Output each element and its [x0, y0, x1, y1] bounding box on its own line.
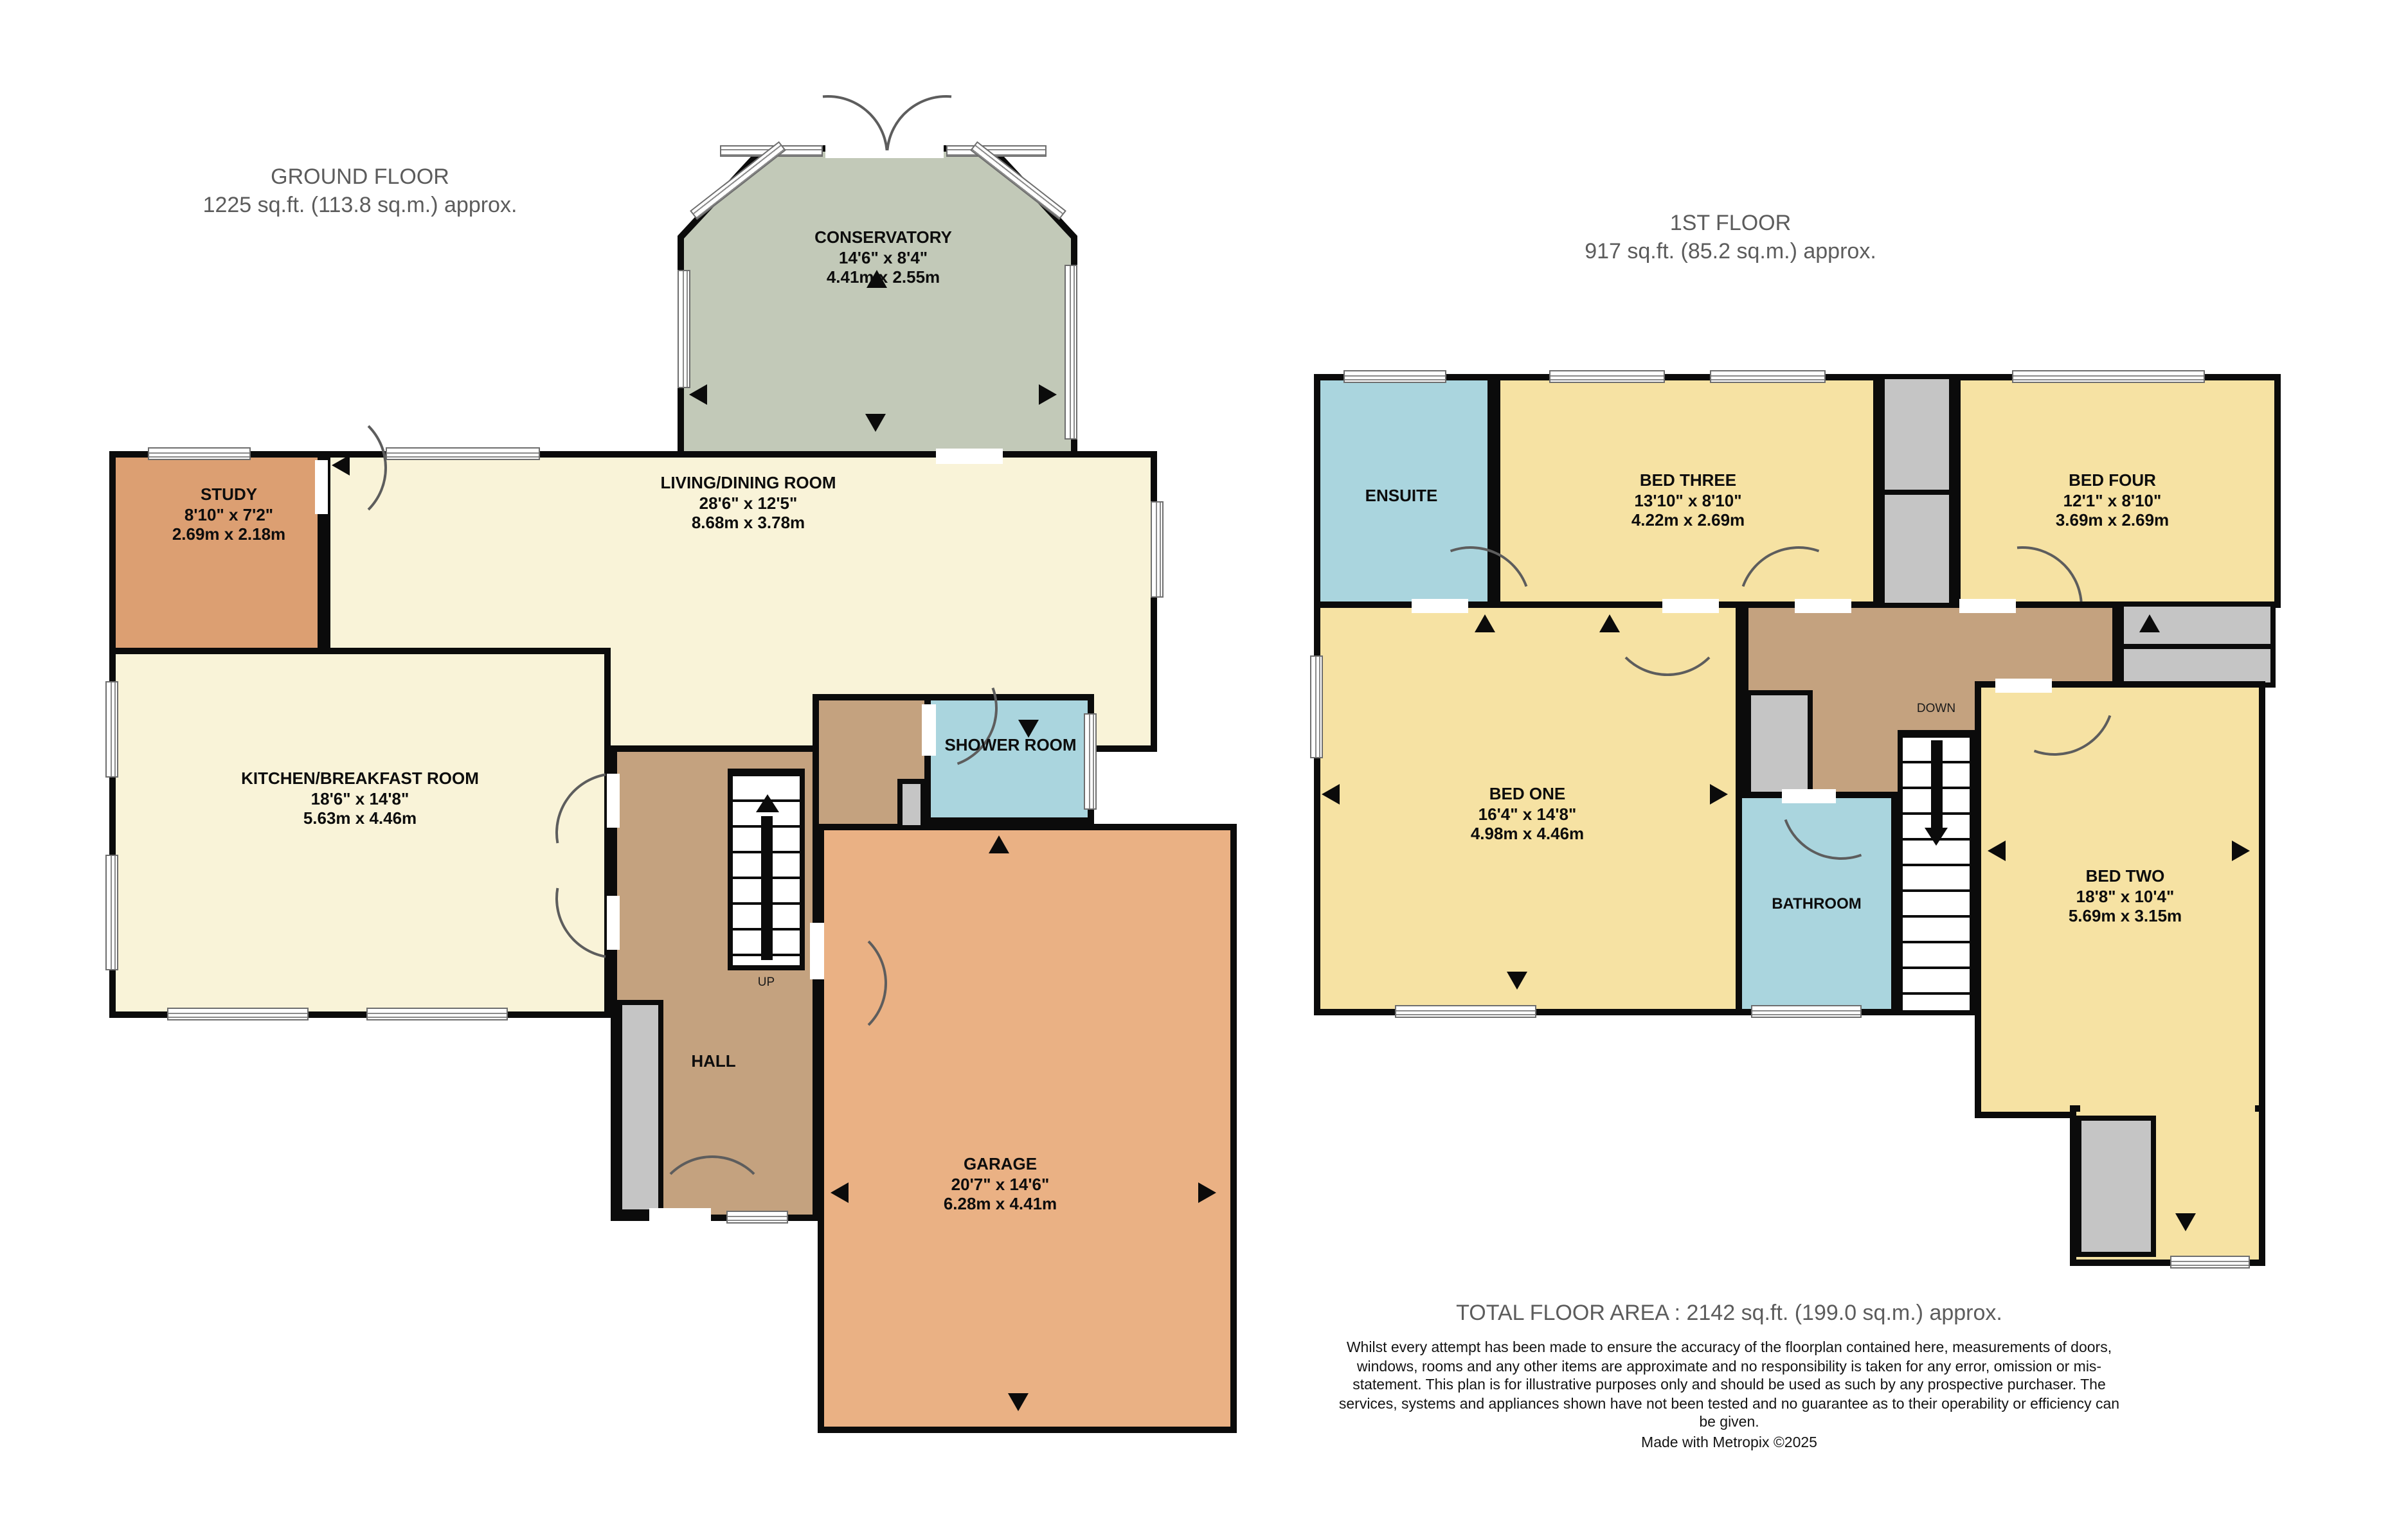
- stairs-down-label: DOWN: [1898, 702, 1975, 716]
- bathroom-window-bottom: [1751, 1005, 1862, 1018]
- bed-three-cupboard-1: [1880, 374, 1954, 495]
- bed-three-cupboard-2: [1880, 490, 1954, 608]
- stairs-up-arrow-head: [756, 794, 779, 812]
- kitchen-dims-metric: 5.63m x 4.46m: [199, 808, 521, 828]
- kitchen-name: KITCHEN/BREAKFAST ROOM: [199, 769, 521, 788]
- first-floor-title: 1ST FLOOR 917 sq.ft. (85.2 sq.m.) approx…: [1473, 209, 1988, 266]
- hall-name: HALL: [636, 1051, 791, 1071]
- ensuite-name: ENSUITE: [1324, 486, 1478, 506]
- metropix-credit: Made with Metropix ©2025: [1337, 1434, 2121, 1452]
- kitchen-label: KITCHEN/BREAKFAST ROOM 18'6" x 14'8" 5.6…: [199, 769, 521, 828]
- stairs-down-arrow-shaft: [1931, 740, 1943, 830]
- bed-three-window-top-2: [1710, 370, 1826, 383]
- footer: TOTAL FLOOR AREA : 2142 sq.ft. (199.0 sq…: [1337, 1301, 2121, 1452]
- room-kitchen-breakfast: [109, 648, 611, 1018]
- garage-marker-down: [1008, 1393, 1029, 1411]
- bed-three-window-top-1: [1549, 370, 1665, 383]
- conservatory-label: CONSERVATORY 14'6" x 8'4" 4.41m x 2.55m: [755, 227, 1012, 287]
- corridor-cupboard: [897, 779, 926, 830]
- living-label: LIVING/DINING ROOM 28'6" x 12'5" 8.68m x…: [588, 473, 909, 533]
- bed-two-cupboard: [2076, 1116, 2156, 1257]
- garage-door-arc: [766, 923, 887, 1044]
- bed-three-dims-imperial: 13'10" x 8'10": [1559, 490, 1817, 510]
- total-floor-area: TOTAL FLOOR AREA : 2142 sq.ft. (199.0 sq…: [1337, 1301, 2121, 1326]
- ensuite-marker-up: [1475, 614, 1495, 632]
- bed-four-dims-imperial: 12'1" x 8'10": [1984, 490, 2241, 510]
- living-to-conservatory-opening: [936, 449, 1003, 464]
- garage-name: GARAGE: [840, 1154, 1161, 1174]
- study-name: STUDY: [120, 485, 338, 504]
- first-floor-title-line1: 1ST FLOOR: [1473, 209, 1988, 238]
- bed-two-dims-metric: 5.69m x 3.15m: [1997, 906, 2254, 926]
- kitchen-dims-imperial: 18'6" x 14'8": [199, 788, 521, 808]
- living-window-right: [1151, 501, 1164, 598]
- ground-floor-title-line2: 1225 sq.ft. (113.8 sq.m.) approx.: [103, 191, 617, 220]
- conservatory-floor: [684, 152, 1071, 451]
- conservatory-window-left: [678, 270, 690, 388]
- living-dims-imperial: 28'6" x 12'5": [588, 493, 909, 513]
- study-label: STUDY 8'10" x 7'2" 2.69m x 2.18m: [120, 485, 338, 544]
- bed-one-dims-metric: 4.98m x 4.46m: [1399, 824, 1656, 844]
- ground-floor-title-line1: GROUND FLOOR: [103, 163, 617, 191]
- living-name: LIVING/DINING ROOM: [588, 473, 909, 493]
- conservatory-window-right: [1065, 265, 1077, 440]
- shower-window-right: [1084, 713, 1097, 810]
- conservatory-marker-down: [865, 414, 886, 432]
- bed-one-window-bottom: [1395, 1005, 1536, 1018]
- conservatory-dims-imperial: 14'6" x 8'4": [755, 247, 1012, 267]
- disclaimer-text: Whilst every attempt has been made to en…: [1337, 1339, 2121, 1432]
- ensuite-label: ENSUITE: [1324, 486, 1478, 506]
- kitchen-window-left-2: [105, 855, 118, 970]
- bed-three-name: BED THREE: [1559, 470, 1817, 490]
- conservatory-name: CONSERVATORY: [755, 227, 1012, 247]
- bed-four-label: BED FOUR 12'1" x 8'10" 3.69m x 2.69m: [1984, 470, 2241, 530]
- kitchen-window-bottom-1: [167, 1008, 309, 1020]
- bed-two-marker-left: [1988, 841, 2006, 861]
- conservatory-dims-metric: 4.41m x 2.55m: [755, 267, 1012, 287]
- conservatory-marker-right: [1039, 384, 1057, 405]
- kitchen-window-bottom-2: [366, 1008, 508, 1020]
- bed-four-marker-up: [2139, 614, 2160, 632]
- bed-two-marker-right: [2232, 841, 2250, 861]
- room-conservatory: [678, 145, 1077, 458]
- study-dims-metric: 2.69m x 2.18m: [120, 524, 338, 544]
- bathroom-label: BATHROOM: [1739, 895, 1894, 914]
- bed-one-marker-right: [1710, 784, 1728, 805]
- shower-name: SHOWER ROOM: [933, 735, 1088, 755]
- study-dims-imperial: 8'10" x 7'2": [120, 504, 338, 524]
- living-window-top: [386, 447, 540, 460]
- hall-label: HALL: [636, 1051, 791, 1071]
- bed-two-marker-down: [2175, 1213, 2196, 1231]
- stairs-down-arrow-head: [1925, 828, 1948, 846]
- garage-dims-metric: 6.28m x 4.41m: [840, 1194, 1161, 1214]
- conservatory-marker-left: [689, 384, 707, 405]
- bed-one-marker-left: [1322, 784, 1340, 805]
- bed-two-label: BED TWO 18'8" x 10'4" 5.69m x 3.15m: [1997, 866, 2254, 926]
- floorplan-canvas: GROUND FLOOR 1225 sq.ft. (113.8 sq.m.) a…: [0, 0, 2408, 1523]
- hall-cupboard: [617, 1000, 663, 1215]
- bed-four-dims-metric: 3.69m x 2.69m: [1984, 510, 2241, 530]
- garage-label: GARAGE 20'7" x 14'6" 6.28m x 4.41m: [840, 1154, 1161, 1214]
- study-window-top: [148, 447, 251, 460]
- shower-label: SHOWER ROOM: [933, 735, 1088, 755]
- bed-one-name: BED ONE: [1399, 784, 1656, 804]
- bed-one-door-arc: [1607, 555, 1728, 676]
- bed-three-label: BED THREE 13'10" x 8'10" 4.22m x 2.69m: [1559, 470, 1817, 530]
- living-dims-metric: 8.68m x 3.78m: [588, 513, 909, 533]
- bed-two-name: BED TWO: [1997, 866, 2254, 886]
- ground-floor-title: GROUND FLOOR 1225 sq.ft. (113.8 sq.m.) a…: [103, 163, 617, 220]
- room-garage: [818, 824, 1237, 1433]
- study-marker-left: [332, 455, 350, 476]
- bathroom-name: BATHROOM: [1739, 895, 1894, 914]
- bed-four-window-top: [2012, 370, 2205, 383]
- ensuite-window-top: [1343, 370, 1446, 383]
- bed-three-marker-up: [1599, 614, 1620, 632]
- bed-one-label: BED ONE 16'4" x 14'8" 4.98m x 4.46m: [1399, 784, 1656, 844]
- front-door-arc: [652, 1155, 773, 1276]
- garage-marker-up: [989, 835, 1009, 853]
- bed-one-window-left: [1310, 655, 1323, 758]
- bed-one-dims-imperial: 16'4" x 14'8": [1399, 804, 1656, 824]
- garage-marker-right: [1198, 1182, 1216, 1203]
- kitchen-window-left-1: [105, 681, 118, 778]
- bed-three-dims-metric: 4.22m x 2.69m: [1559, 510, 1817, 530]
- bed-one-marker-down: [1507, 972, 1527, 990]
- stairs-up-arrow-shaft: [761, 816, 773, 960]
- garage-dims-imperial: 20'7" x 14'6": [840, 1174, 1161, 1194]
- bed-two-window-bottom: [2170, 1256, 2250, 1269]
- bed-two-dims-imperial: 18'8" x 10'4": [1997, 886, 2254, 906]
- first-floor-title-line2: 917 sq.ft. (85.2 sq.m.) approx.: [1473, 238, 1988, 266]
- bed-four-name: BED FOUR: [1984, 470, 2241, 490]
